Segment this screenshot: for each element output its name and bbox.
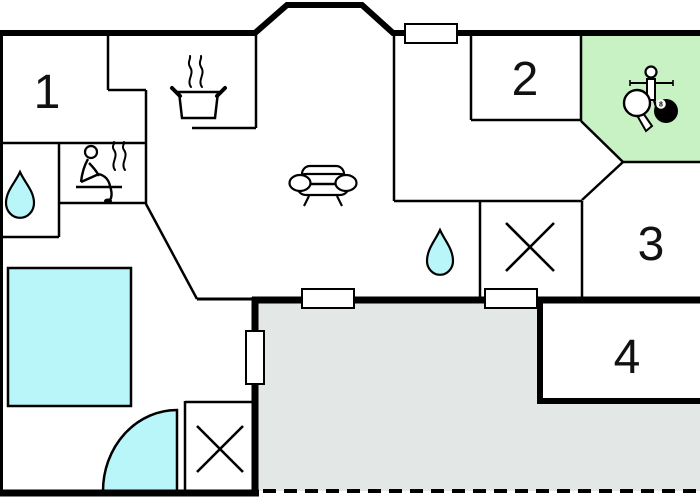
terrace-area [255, 300, 700, 491]
window [302, 289, 354, 308]
steam-icon [113, 142, 116, 170]
floor-plan-drawing: 8 1 2 3 4 [0, 0, 700, 500]
room-1-label: 1 [34, 66, 61, 119]
cooking-pot-icon [172, 56, 225, 118]
steam-icon [123, 142, 126, 170]
billiard-ball-number: 8 [659, 102, 663, 109]
room-3-label: 3 [638, 218, 665, 271]
window [485, 289, 537, 308]
pool [8, 268, 131, 406]
water-drop-icon [6, 172, 34, 218]
terrace-door [246, 331, 264, 384]
shower-x-icon [506, 223, 554, 271]
shower-x-icon [197, 426, 243, 472]
room-2-label: 2 [512, 53, 539, 106]
steam-icon [189, 56, 192, 87]
window [405, 24, 457, 43]
exterior-wall-top [0, 5, 700, 33]
floor-plan: 8 1 2 3 4 [0, 0, 700, 500]
billiard-ball-icon: 8 [654, 99, 678, 123]
room-4-label: 4 [614, 331, 641, 384]
corner-bathtub [103, 410, 177, 491]
sofa-icon [290, 166, 357, 206]
water-drop-icon [427, 230, 453, 275]
steam-icon [200, 56, 203, 87]
sauna-icon [76, 142, 126, 204]
